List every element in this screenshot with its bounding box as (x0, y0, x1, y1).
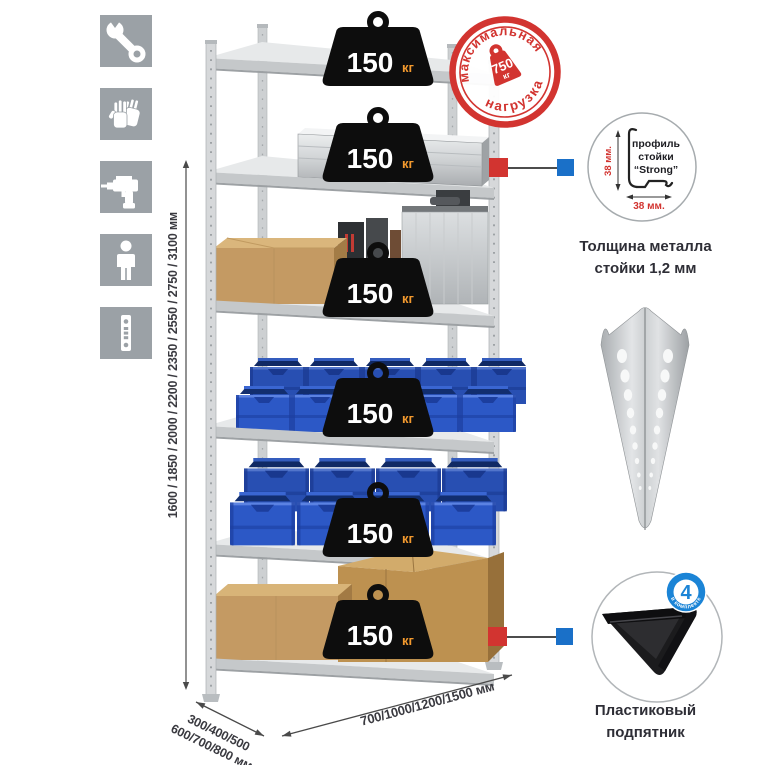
load-value: 150 (347, 47, 394, 78)
foot-caption-line1: Пластиковый (558, 700, 733, 722)
profile-label: “Strong” (634, 164, 678, 176)
foot-caption: Пластиковый подпятник (558, 700, 733, 744)
load-weight: 150 кг (323, 14, 434, 86)
profile-label: стойки (638, 151, 673, 163)
callout-marker-red-top (489, 158, 508, 177)
profile-caption-line1: Толщина металла (558, 236, 733, 258)
height-dimension-label: 1600 / 1850 / 2000 / 2200 / 2350 / 2550 … (165, 200, 181, 530)
load-unit: кг (402, 60, 415, 75)
infographic-shelving-unit: 1600 / 1850 / 2000 / 2200 / 2350 / 2550 … (0, 0, 765, 765)
load-value: 150 (347, 143, 394, 174)
profile-caption: Толщина металла стойки 1,2 мм (558, 236, 733, 280)
corner-post-image (595, 299, 695, 534)
load-value: 150 (347, 398, 394, 429)
load-unit: кг (402, 291, 415, 306)
profile-dim-horizontal: 38 мм. (633, 201, 665, 212)
plastic-foot-detail: 4 в комплекте (588, 566, 733, 711)
load-unit: кг (402, 531, 415, 546)
wrench-icon (100, 15, 152, 67)
load-value: 150 (347, 278, 394, 309)
load-unit: кг (402, 411, 415, 426)
load-unit: кг (402, 156, 415, 171)
post-profile-detail: 38 мм. 38 мм. профиль стойки “Strong” (585, 110, 701, 226)
load-value: 150 (347, 620, 394, 651)
load-value: 150 (347, 518, 394, 549)
person-icon (100, 234, 152, 286)
profile-caption-line2: стойки 1,2 мм (558, 258, 733, 280)
badge-count: 4 (680, 582, 692, 604)
foot-caption-line2: подпятник (558, 722, 733, 744)
perforated-post-icon (100, 307, 152, 359)
set-count-badge: 4 в комплекте (666, 572, 706, 612)
callout-marker-blue-bottom (556, 628, 573, 645)
profile-label: профиль (632, 138, 680, 150)
cardboard-box (214, 238, 347, 304)
gloves-icon (100, 88, 152, 140)
max-load-stamp: максимальная нагрузка 750 кг (443, 12, 567, 134)
load-weight: 150 кг (323, 110, 434, 182)
drill-icon (100, 161, 152, 213)
callout-marker-red-bottom (488, 627, 507, 646)
callout-marker-blue-top (557, 159, 574, 176)
load-unit: кг (402, 633, 415, 648)
profile-dim-vertical: 38 мм. (603, 146, 614, 176)
